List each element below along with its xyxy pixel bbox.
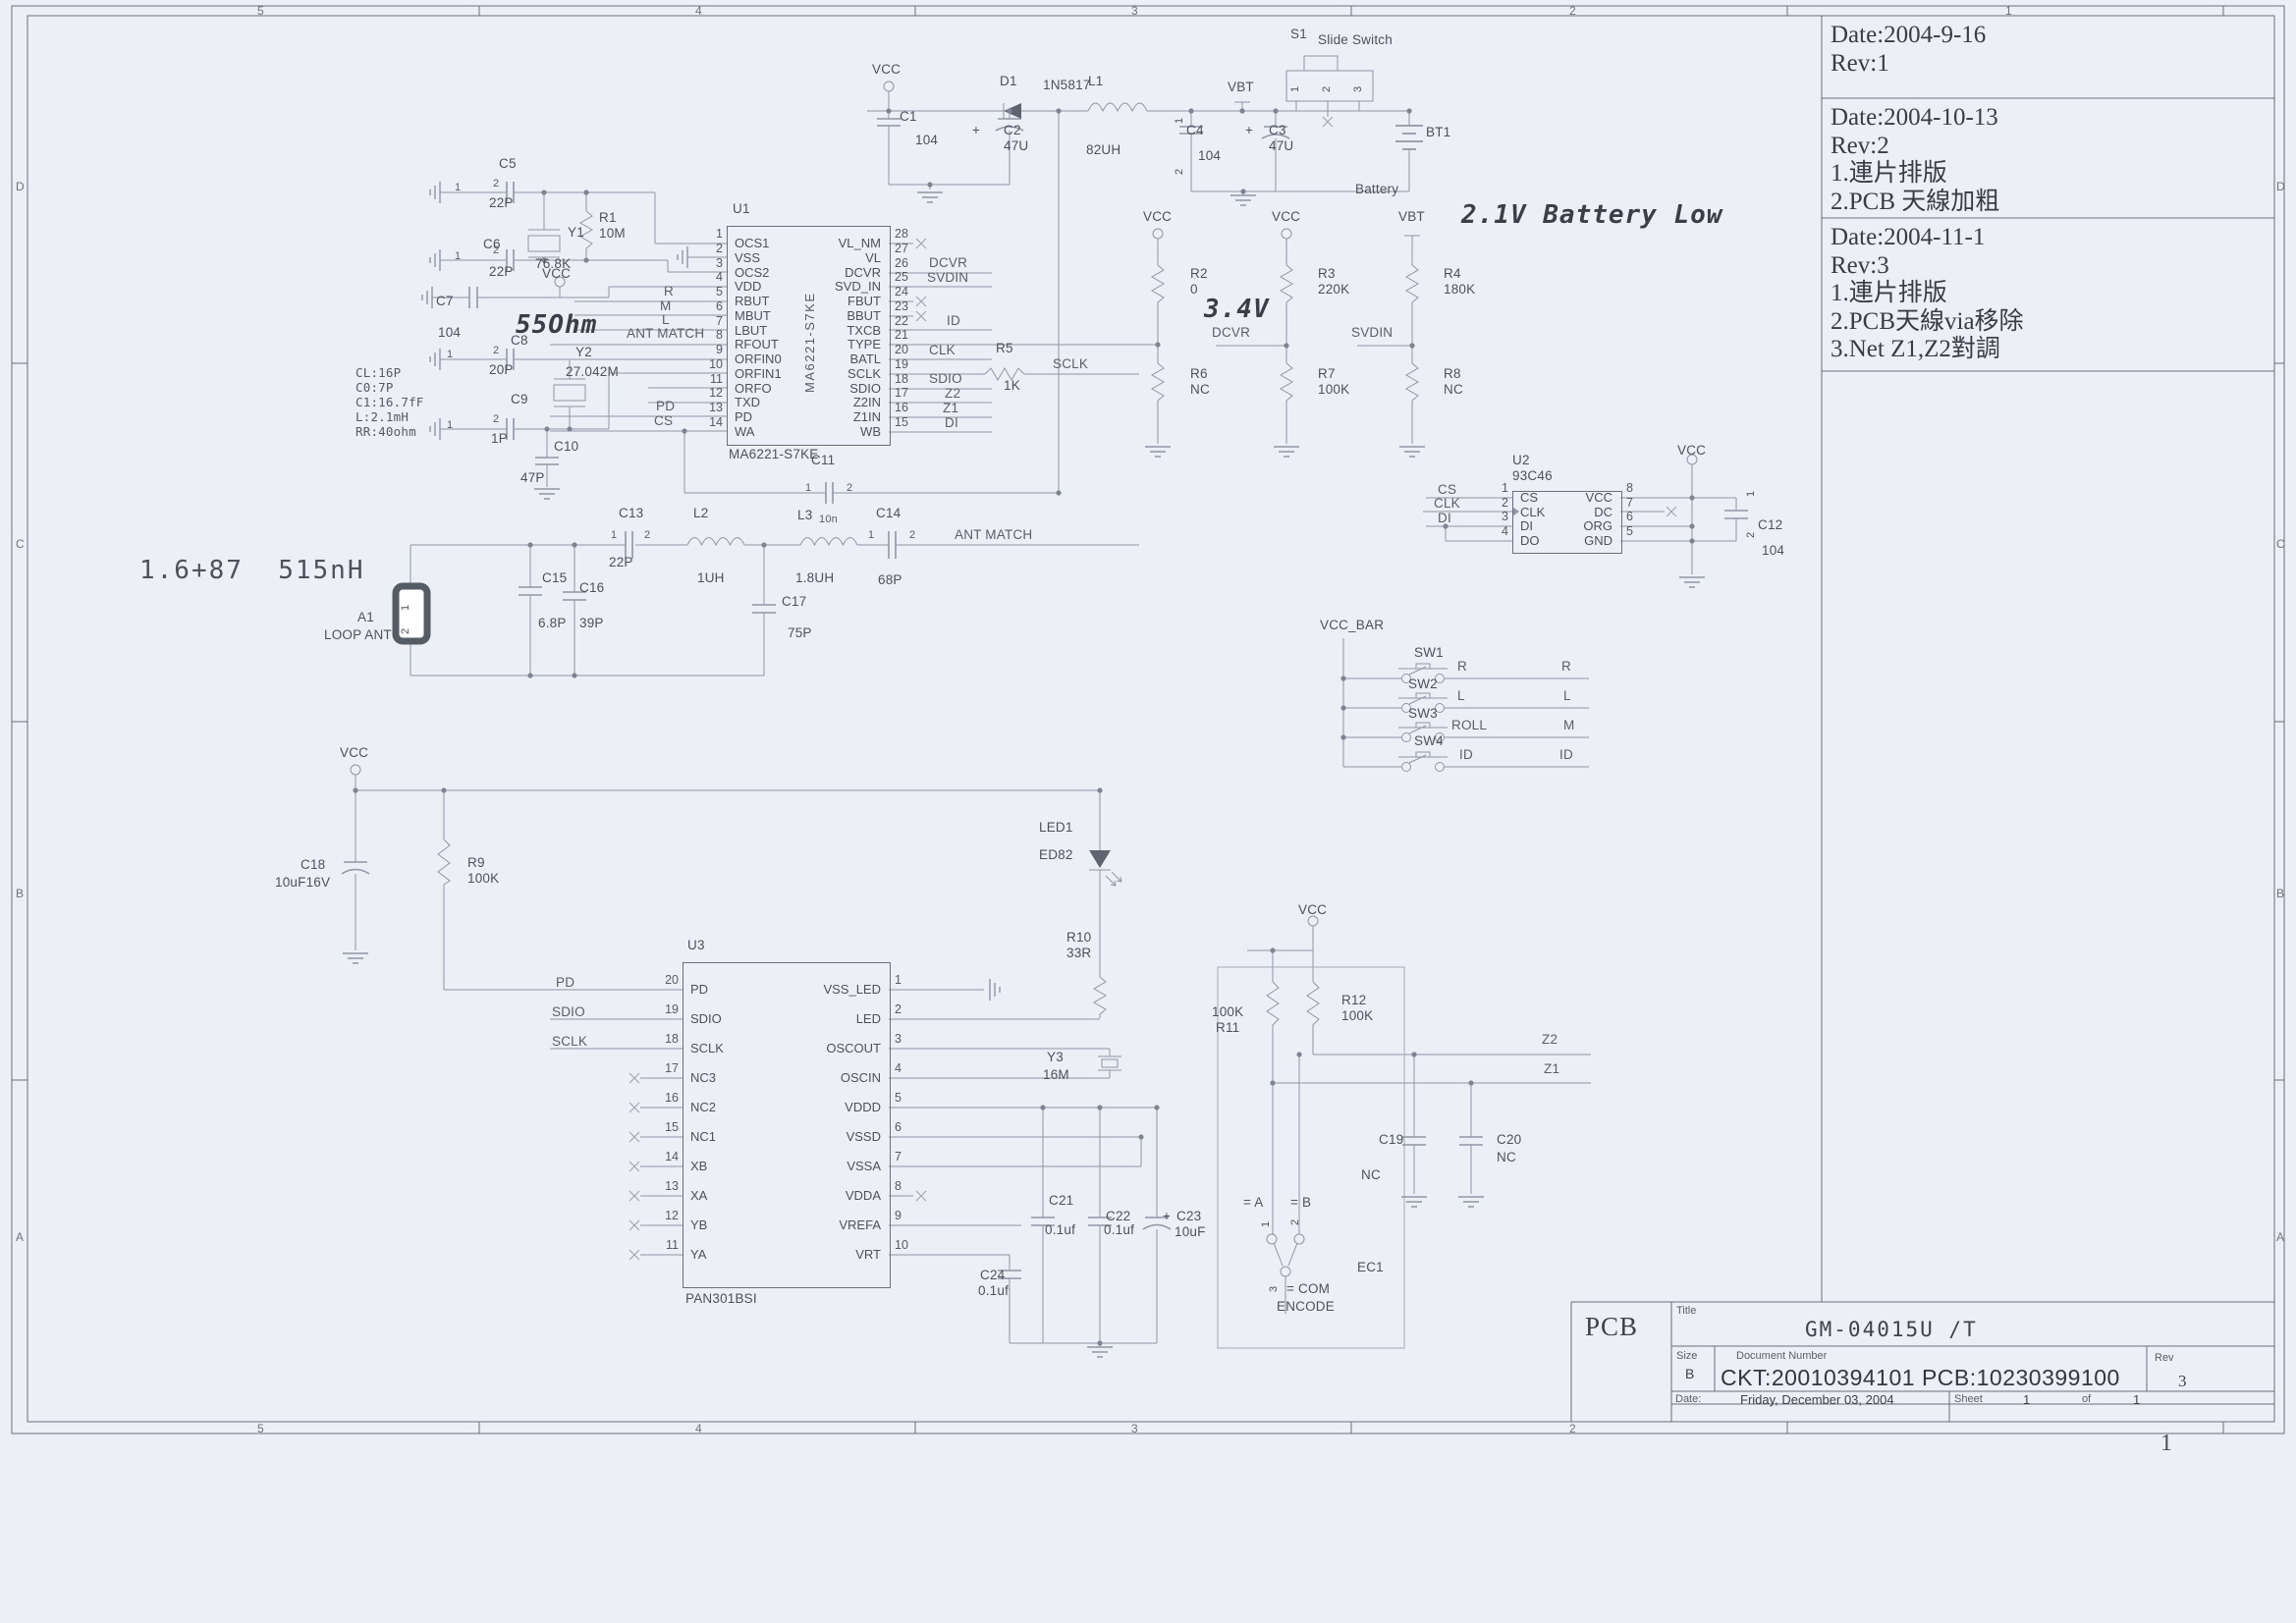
pin-num-u1-11: 11: [695, 373, 723, 386]
pin-num-u1-19: 19: [895, 358, 908, 371]
pin-name-vddd: VDDD: [789, 1101, 881, 1113]
label-3: 3: [1353, 86, 1364, 92]
rev-label: Rev: [2155, 1353, 2174, 1364]
label-a: A: [16, 1231, 24, 1243]
pin-name-vssa: VSSA: [789, 1160, 881, 1172]
label-l1: L1: [1088, 75, 1103, 88]
label-104: 104: [1198, 149, 1221, 163]
label-c19: C19: [1379, 1133, 1403, 1147]
label-c4: C4: [1186, 124, 1204, 137]
label-y3: Y3: [1047, 1051, 1064, 1064]
label-2: 2: [1322, 86, 1333, 92]
pin-num-u1-7: 7: [695, 315, 723, 328]
label-r4: R4: [1444, 267, 1461, 281]
label-1n5817: 1N5817: [1043, 79, 1091, 92]
pin-name-wb: WB: [789, 425, 881, 438]
label-2: 2: [1746, 532, 1757, 538]
u2-part: 93C46: [1512, 469, 1553, 483]
pin-name-bbut: BBUT: [789, 309, 881, 322]
pin-num-u1-9: 9: [695, 344, 723, 356]
annotation-battery-low: 2.1V Battery Low: [1461, 202, 1722, 228]
pin-name-nc2: NC2: [690, 1101, 716, 1113]
label-l-2-1mh: L:2.1mH: [355, 411, 409, 424]
label-: +: [1245, 124, 1253, 137]
label-c20: C20: [1497, 1133, 1521, 1147]
label-vcc: VCC: [1677, 444, 1706, 458]
pin-num-u1-5: 5: [695, 286, 723, 298]
pin-name-vss_led: VSS_LED: [789, 983, 881, 996]
label-b: = B: [1290, 1196, 1311, 1210]
pin-name-lbut: LBUT: [735, 324, 767, 337]
pin-name-rbut: RBUT: [735, 295, 769, 307]
pin-name-ya: YA: [690, 1248, 706, 1261]
pin-name-vl_nm: VL_NM: [789, 237, 881, 249]
pin-num-u1-26: 26: [895, 257, 908, 270]
pin-num-u1-20: 20: [895, 344, 908, 356]
label-bt1: BT1: [1426, 126, 1450, 139]
pin-num-u3-17: 17: [651, 1062, 679, 1075]
label-39p: 39P: [579, 617, 604, 630]
rev2-rev: Rev:2: [1831, 133, 1889, 159]
ref-right-c: C: [2276, 538, 2285, 550]
net-m-right: M: [1563, 719, 1574, 732]
label-16m: 16M: [1043, 1068, 1069, 1082]
sheet-label: Sheet: [1954, 1394, 1983, 1405]
pin-num-u3-7: 7: [895, 1151, 902, 1163]
label-2: 2: [847, 483, 852, 494]
label-r: R: [1457, 660, 1467, 674]
label-r8: R8: [1444, 367, 1461, 381]
pin-num-u3-16: 16: [651, 1092, 679, 1105]
label-svdin: SVDIN: [927, 271, 968, 285]
pin-name-ocs2: OCS2: [735, 266, 769, 279]
pin-name-vcc: VCC: [1520, 491, 1613, 504]
label-z1: Z1: [943, 402, 958, 415]
sheet-total: 1: [2133, 1393, 2140, 1406]
label-z1: Z1: [1544, 1062, 1559, 1076]
label-1k: 1K: [1004, 379, 1020, 393]
ref-bottom-2: 2: [1569, 1423, 1576, 1434]
label-22p: 22P: [489, 196, 514, 210]
label-svdin: SVDIN: [1351, 326, 1393, 340]
label-sw3: SW3: [1408, 707, 1438, 721]
label-rr-40ohm: RR:40ohm: [355, 426, 416, 439]
label-c11: C11: [811, 454, 835, 467]
label-led1: LED1: [1039, 821, 1073, 835]
label-68p: 68P: [878, 573, 902, 587]
label-1: 1: [1290, 86, 1301, 92]
pin-name-vssd: VSSD: [789, 1130, 881, 1143]
net-vcc-u1: VCC: [542, 267, 571, 281]
pin-num-u3-10: 10: [895, 1239, 908, 1252]
pin-name-sdio: SDIO: [690, 1012, 722, 1025]
label-nc: NC: [1444, 383, 1463, 397]
label-u1: U1: [733, 202, 750, 216]
label-c21: C21: [1049, 1194, 1073, 1208]
pin-num-u2-6: 6: [1626, 511, 1633, 523]
label-10uf16v: 10uF16V: [275, 876, 330, 890]
label-0: 0: [1190, 283, 1198, 297]
label-a: = A: [1243, 1196, 1264, 1210]
title-block-pcb: PCB: [1585, 1314, 1638, 1340]
rev3-item1: 1.連片排版: [1831, 280, 1947, 306]
pin-num-u3-18: 18: [651, 1033, 679, 1046]
net-r-right: R: [1561, 660, 1571, 674]
net-ant-match-left: ANT MATCH: [627, 327, 704, 341]
label-pd: PD: [656, 400, 675, 413]
label-: +: [1163, 1210, 1171, 1223]
ref-top-1: 1: [2005, 5, 2012, 17]
label-encode: ENCODE: [1277, 1300, 1335, 1314]
label-a1: A1: [357, 611, 374, 624]
label-3: 3: [1131, 5, 1138, 17]
label-loop-ant: LOOP ANT: [324, 628, 392, 642]
label-2: 2: [401, 628, 411, 634]
page-number: 1: [2160, 1432, 2172, 1455]
rev-value: 3: [2178, 1373, 2187, 1389]
label-y1: Y1: [568, 226, 584, 240]
pin-name-led: LED: [789, 1012, 881, 1025]
label-1: 1: [401, 605, 411, 611]
label-c5: C5: [499, 157, 517, 171]
pin-num-u3-4: 4: [895, 1062, 902, 1075]
pin-name-sclk: SCLK: [690, 1042, 724, 1055]
label-: +: [972, 124, 980, 137]
label-c7: C7: [436, 295, 454, 308]
label-r12: R12: [1341, 994, 1366, 1007]
doc-number-label: Document Number: [1736, 1351, 1827, 1362]
label-82uh: 82UH: [1086, 143, 1121, 157]
pin-num-u3-3: 3: [895, 1033, 902, 1046]
of-label: of: [2082, 1394, 2091, 1405]
label-c17: C17: [782, 595, 806, 609]
label-5: 5: [257, 5, 264, 17]
label-c2: C2: [1004, 124, 1021, 137]
label-l3: L3: [797, 509, 812, 522]
label-z2: Z2: [945, 387, 960, 401]
label-c8: C8: [511, 334, 528, 348]
label-c: C: [16, 538, 25, 550]
date-value: Friday, December 03, 2004: [1740, 1393, 1894, 1406]
label-100k: 100K: [467, 872, 499, 886]
label-sw2: SW2: [1408, 677, 1438, 691]
label-c3: C3: [1269, 124, 1286, 137]
pin-num-u1-25: 25: [895, 271, 908, 284]
label-1p: 1P: [491, 432, 508, 446]
label-2: 2: [1290, 1219, 1301, 1225]
pin-num-u3-11: 11: [651, 1239, 679, 1252]
pin-name-fbut: FBUT: [789, 295, 881, 307]
label-l: L: [662, 313, 670, 327]
pin-num-u1-15: 15: [895, 416, 908, 429]
label-c24: C24: [980, 1269, 1005, 1282]
label-1: 1: [805, 483, 811, 494]
label-sdio: SDIO: [552, 1005, 585, 1019]
label-1: 1: [455, 183, 461, 193]
pin-name-txcb: TXCB: [789, 324, 881, 337]
label-75p: 75P: [788, 626, 812, 640]
label-6-8p: 6.8P: [538, 617, 567, 630]
rev3-rev: Rev:3: [1831, 252, 1889, 279]
pin-name-oscout: OSCOUT: [789, 1042, 881, 1055]
pin-name-gnd: GND: [1520, 534, 1613, 547]
pin-name-vrt: VRT: [789, 1248, 881, 1261]
pin-name-pd: PD: [690, 983, 708, 996]
pin-name-yb: YB: [690, 1218, 707, 1231]
ref-bottom-5: 5: [257, 1423, 264, 1434]
pin-num-u3-5: 5: [895, 1092, 902, 1105]
label-ed82: ED82: [1039, 848, 1073, 862]
label-100k: 100K: [1212, 1005, 1243, 1019]
pin-num-u1-17: 17: [895, 387, 908, 400]
pin-name-wa: WA: [735, 425, 754, 438]
label-1: 1: [455, 251, 461, 262]
label-c10: C10: [554, 440, 578, 454]
pin-name-dcvr: DCVR: [789, 266, 881, 279]
pin-name-vdda: VDDA: [789, 1189, 881, 1202]
net-vcc-bar: VCC_BAR: [1320, 619, 1384, 632]
label-c14: C14: [876, 507, 901, 520]
pin-name-orfin0: ORFIN0: [735, 352, 782, 365]
label-m: M: [660, 299, 671, 313]
pin-name-nc3: NC3: [690, 1071, 716, 1084]
label-104: 104: [438, 326, 461, 340]
label-u2: U2: [1512, 454, 1530, 467]
label-slide-switch: Slide Switch: [1318, 33, 1393, 47]
label-0-1uf: 0.1uf: [1045, 1223, 1075, 1237]
pin-num-u2-5: 5: [1626, 525, 1633, 538]
pin-name-z1in: Z1IN: [789, 410, 881, 423]
pin-name-vl: VL: [789, 251, 881, 264]
rev2-item2: 2.PCB 天線加粗: [1831, 189, 1999, 215]
pin-num-u1-4: 4: [695, 271, 723, 284]
pin-num-u1-10: 10: [695, 358, 723, 371]
pin-num-u1-18: 18: [895, 373, 908, 386]
label-r1: R1: [599, 211, 617, 225]
label-r9: R9: [467, 856, 485, 870]
pin-num-u1-12: 12: [695, 387, 723, 400]
pin-num-u2-8: 8: [1626, 482, 1633, 495]
pin-num-u3-1: 1: [895, 974, 902, 987]
label-r10: R10: [1066, 931, 1091, 945]
label-180k: 180K: [1444, 283, 1475, 297]
pin-name-txd: TXD: [735, 396, 760, 408]
label-r7: R7: [1318, 367, 1336, 381]
label-0-1uf: 0.1uf: [978, 1284, 1009, 1298]
rev2-item1: 1.連片排版: [1831, 160, 1947, 187]
label-d1: D1: [1000, 75, 1017, 88]
label-0-1uf: 0.1uf: [1104, 1223, 1134, 1237]
pin-name-oscin: OSCIN: [789, 1071, 881, 1084]
pin-name-orfin1: ORFIN1: [735, 367, 782, 380]
label-id: ID: [1459, 748, 1473, 762]
pin-name-nc1: NC1: [690, 1130, 716, 1143]
pin-num-u3-2: 2: [895, 1003, 902, 1016]
pin-name-ocs1: OCS1: [735, 237, 769, 249]
label-r11: R11: [1216, 1021, 1239, 1035]
label-clk: CLK: [1434, 497, 1460, 511]
label-c0-7p: C0:7P: [355, 382, 394, 395]
label-10n: 10n: [819, 514, 838, 525]
label-10m: 10M: [599, 227, 626, 241]
label-id: ID: [947, 314, 960, 328]
label-di: DI: [1438, 512, 1451, 525]
size-label: Size: [1676, 1351, 1697, 1362]
label-c9: C9: [511, 393, 528, 406]
label-r3: R3: [1318, 267, 1336, 281]
revision-1: Date:2004-9-16Rev:1: [1831, 22, 1986, 78]
label-220k: 220K: [1318, 283, 1349, 297]
pin-num-u3-9: 9: [895, 1210, 902, 1222]
label-c22: C22: [1106, 1210, 1130, 1223]
size-value: B: [1685, 1367, 1694, 1380]
pin-num-u1-1: 1: [695, 228, 723, 241]
label-l: L: [1457, 689, 1465, 703]
label-battery: Battery: [1355, 183, 1398, 196]
pin-num-u3-14: 14: [651, 1151, 679, 1163]
label-nc: NC: [1361, 1168, 1381, 1182]
label-sclk: SCLK: [552, 1035, 587, 1049]
label-c15: C15: [542, 571, 567, 585]
annotation-3-4v: 3.4V: [1204, 297, 1270, 322]
label-1: 1: [447, 420, 453, 431]
rev3-item3: 3.Net Z1,Z2對調: [1831, 336, 2000, 362]
label-1: 1: [447, 350, 453, 360]
label-2: 2: [644, 530, 650, 541]
net-vbt-top: VBT: [1228, 81, 1254, 94]
pin-num-u1-3: 3: [695, 257, 723, 270]
label-1: 1: [611, 530, 617, 541]
label-2: 2: [493, 414, 499, 425]
label-pd: PD: [556, 976, 574, 990]
pin-num-u3-8: 8: [895, 1180, 902, 1193]
rev3-date: Date:2004-11-1: [1831, 224, 1985, 250]
label-dcvr: DCVR: [1212, 326, 1250, 340]
rev1-rev: Rev:1: [1831, 50, 1889, 77]
label-1uh: 1UH: [697, 571, 725, 585]
date-label: Date:: [1675, 1394, 1701, 1405]
label-47p: 47P: [520, 471, 545, 485]
label-ec1: EC1: [1357, 1261, 1384, 1274]
net-ant-match-right: ANT MATCH: [955, 528, 1032, 542]
label-s1: S1: [1290, 27, 1307, 41]
label-2: 2: [1569, 5, 1576, 17]
pin-name-svd_in: SVD_IN: [789, 280, 881, 293]
pin-name-xa: XA: [690, 1189, 707, 1202]
label-2: 2: [909, 530, 915, 541]
label-cs: CS: [1438, 483, 1456, 497]
label-clk: CLK: [929, 344, 956, 357]
pin-num-u2-1: 1: [1481, 482, 1508, 495]
pin-name-z2in: Z2IN: [789, 396, 881, 408]
label-nc: NC: [1497, 1151, 1516, 1164]
pin-name-dc: DC: [1520, 506, 1613, 518]
label-nc: NC: [1190, 383, 1210, 397]
label-1: 1: [868, 530, 874, 541]
pin-num-u1-27: 27: [895, 243, 908, 255]
label-r2: R2: [1190, 267, 1208, 281]
pin-num-u1-21: 21: [895, 329, 908, 342]
pin-name-sdio: SDIO: [789, 382, 881, 395]
annotation-515nh: 1.6+87 515nH: [139, 558, 365, 583]
pin-num-u1-28: 28: [895, 228, 908, 241]
label-33r: 33R: [1066, 947, 1091, 960]
label-10uf: 10uF: [1175, 1225, 1206, 1239]
label-1: 1: [1746, 491, 1757, 497]
pin-num-u1-24: 24: [895, 286, 908, 298]
ref-bottom-3: 3: [1131, 1423, 1138, 1434]
pin-num-u1-23: 23: [895, 300, 908, 313]
pin-name-type: TYPE: [789, 338, 881, 351]
net-id-right: ID: [1559, 748, 1573, 762]
label-2: 2: [493, 179, 499, 189]
pin-num-u2-2: 2: [1481, 497, 1508, 510]
label-cs: CS: [654, 414, 673, 428]
label-sw1: SW1: [1414, 646, 1444, 660]
label-vcc: VCC: [1143, 210, 1172, 224]
label-c1: C1: [900, 110, 917, 124]
pin-num-u3-6: 6: [895, 1121, 902, 1134]
label-vcc: VCC: [1272, 210, 1300, 224]
pin-num-u3-15: 15: [651, 1121, 679, 1134]
pin-num-u2-7: 7: [1626, 497, 1633, 510]
rev2-date: Date:2004-10-13: [1831, 104, 1998, 131]
revision-2: Date:2004-10-13Rev:21.連片排版2.PCB 天線加粗: [1831, 104, 1999, 216]
pin-num-u3-12: 12: [651, 1210, 679, 1222]
label-1: 1: [1175, 118, 1185, 124]
label-c13: C13: [619, 507, 643, 520]
label-c16: C16: [579, 581, 604, 595]
rev1-date: Date:2004-9-16: [1831, 22, 1986, 48]
label-com: = COM: [1286, 1282, 1330, 1296]
label-d: D: [16, 181, 25, 192]
label-3: 3: [1269, 1286, 1280, 1292]
label-100k: 100K: [1318, 383, 1349, 397]
pin-name-xb: XB: [690, 1160, 707, 1172]
pin-num-u1-2: 2: [695, 243, 723, 255]
pin-num-u1-8: 8: [695, 329, 723, 342]
label-vcc: VCC: [340, 746, 368, 760]
net-vcc-top: VCC: [872, 63, 901, 77]
pin-name-org: ORG: [1520, 519, 1613, 532]
pin-name-vss: VSS: [735, 251, 760, 264]
label-r6: R6: [1190, 367, 1208, 381]
label-vcc: VCC: [1298, 903, 1327, 917]
pin-name-rfout: RFOUT: [735, 338, 779, 351]
pin-num-u3-13: 13: [651, 1180, 679, 1193]
pin-num-u1-16: 16: [895, 402, 908, 414]
label-1-8uh: 1.8UH: [795, 571, 834, 585]
doc-number-value: CKT:20010394101 PCB:10230399100: [1721, 1367, 2120, 1389]
schematic-title: GM-04015U /T: [1805, 1320, 1978, 1340]
label-22p: 22P: [609, 556, 633, 569]
label-r: R: [664, 285, 674, 298]
label-l2: L2: [693, 507, 708, 520]
pin-num-u1-22: 22: [895, 315, 908, 328]
sheet-number: 1: [2023, 1393, 2030, 1406]
label-104: 104: [1762, 544, 1784, 558]
label-sw4: SW4: [1414, 734, 1444, 748]
label-vbt: VBT: [1398, 210, 1425, 224]
label-b: B: [16, 888, 24, 899]
title-label: Title: [1676, 1306, 1696, 1317]
label-c23: C23: [1176, 1210, 1201, 1223]
label-2: 2: [493, 346, 499, 356]
label-u3: U3: [687, 939, 705, 952]
label-2: 2: [493, 245, 499, 256]
schematic-sheet: U1MA6221-S7KEMA6221-S7KEU293C46U3PAN301B…: [0, 0, 2296, 1623]
label-2: 2: [1175, 169, 1185, 175]
